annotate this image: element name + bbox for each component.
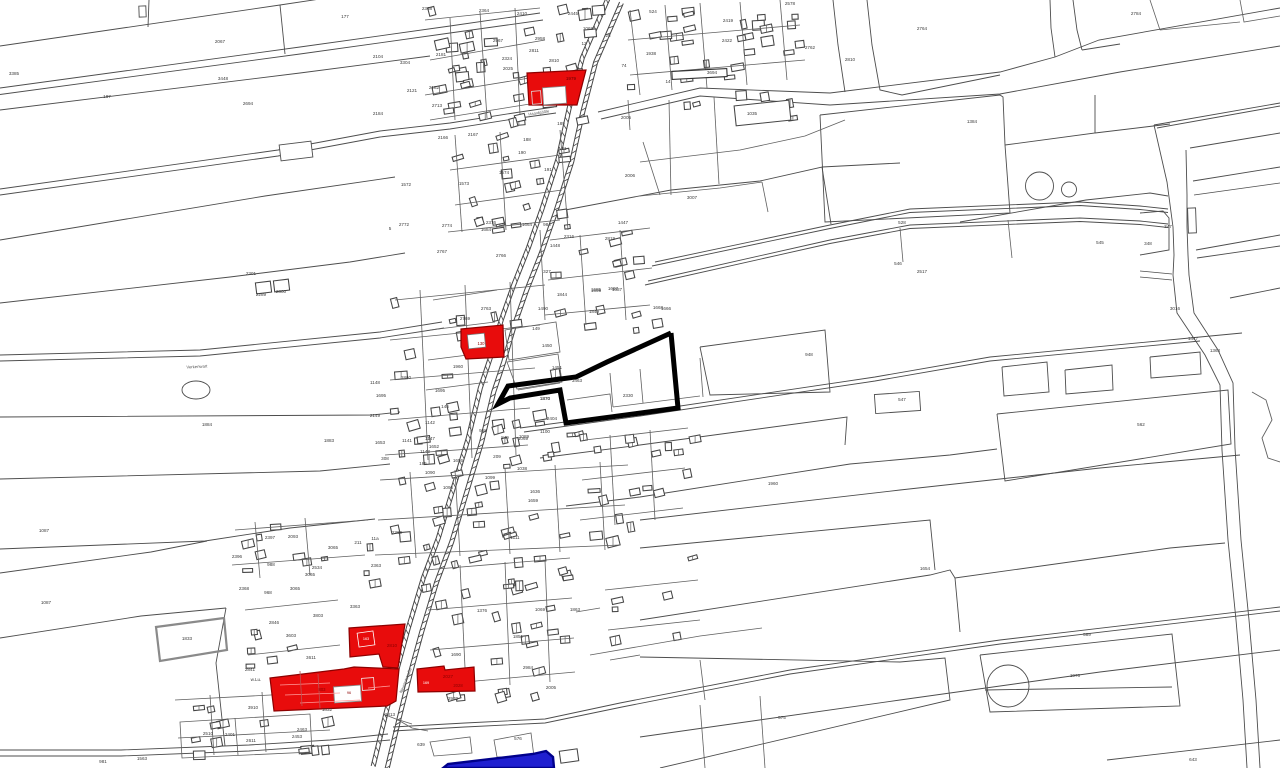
svg-text:2984: 2984 — [523, 665, 534, 670]
svg-text:2769: 2769 — [460, 316, 471, 321]
svg-text:2810: 2810 — [549, 58, 560, 63]
svg-text:3007: 3007 — [687, 195, 698, 200]
svg-text:74: 74 — [621, 63, 627, 68]
svg-text:2376: 2376 — [486, 220, 497, 225]
svg-text:2774: 2774 — [442, 223, 453, 228]
svg-text:1832: 1832 — [322, 707, 333, 712]
svg-text:958: 958 — [479, 428, 487, 433]
svg-text:187: 187 — [103, 94, 111, 99]
svg-text:2810: 2810 — [845, 57, 856, 62]
svg-text:2182: 2182 — [429, 85, 440, 90]
svg-text:149: 149 — [532, 326, 540, 331]
svg-text:2578: 2578 — [785, 1, 796, 6]
svg-text:3363: 3363 — [350, 604, 361, 609]
svg-text:2005: 2005 — [621, 115, 632, 120]
svg-text:327: 327 — [543, 269, 551, 274]
svg-text:1863: 1863 — [570, 607, 581, 612]
svg-text:2369: 2369 — [392, 530, 403, 535]
svg-text:1143: 1143 — [420, 449, 430, 454]
svg-text:1884: 1884 — [202, 422, 213, 427]
svg-text:2784: 2784 — [1131, 11, 1142, 16]
svg-text:1099: 1099 — [485, 475, 496, 480]
svg-text:169: 169 — [423, 681, 429, 685]
svg-text:2767: 2767 — [437, 249, 448, 254]
svg-text:1141: 1141 — [402, 438, 412, 443]
svg-text:1684: 1684 — [481, 227, 492, 232]
svg-text:1572: 1572 — [401, 182, 412, 187]
svg-text:1111: 1111 — [510, 535, 520, 540]
svg-text:1100: 1100 — [540, 429, 550, 434]
svg-text:308: 308 — [381, 456, 389, 461]
svg-text:2028: 2028 — [453, 683, 463, 688]
svg-text:1653: 1653 — [375, 440, 386, 445]
svg-text:2453: 2453 — [292, 734, 303, 739]
svg-text:1563: 1563 — [137, 756, 148, 761]
svg-text:2967: 2967 — [493, 38, 504, 43]
svg-text:3910: 3910 — [248, 705, 259, 710]
svg-text:2841: 2841 — [245, 667, 256, 672]
svg-text:803: 803 — [319, 687, 327, 692]
svg-text:528: 528 — [898, 220, 906, 225]
svg-text:2006: 2006 — [625, 173, 636, 178]
svg-text:1090: 1090 — [425, 470, 436, 475]
svg-text:2419: 2419 — [723, 18, 734, 23]
svg-text:2301: 2301 — [246, 271, 257, 276]
svg-text:1038: 1038 — [517, 466, 528, 471]
svg-text:1860: 1860 — [401, 375, 412, 380]
svg-text:576: 576 — [514, 736, 522, 741]
svg-text:968: 968 — [264, 590, 272, 595]
svg-text:191: 191 — [544, 167, 552, 172]
svg-text:w.Lu.: w.Lu. — [251, 677, 262, 682]
svg-text:981: 981 — [99, 759, 107, 764]
svg-text:2694: 2694 — [243, 101, 254, 106]
svg-text:1844: 1844 — [557, 292, 568, 297]
svg-text:190: 190 — [518, 150, 526, 155]
svg-text:3065: 3065 — [305, 572, 316, 577]
svg-text:1376: 1376 — [477, 608, 488, 613]
svg-text:1849: 1849 — [589, 309, 600, 314]
svg-text:347: 347 — [1164, 224, 1172, 229]
svg-text:2762: 2762 — [805, 45, 816, 50]
svg-text:2970: 2970 — [448, 696, 459, 701]
svg-text:3803: 3803 — [313, 613, 324, 618]
svg-text:1142: 1142 — [425, 420, 435, 425]
svg-text:209: 209 — [493, 454, 501, 459]
svg-text:2401: 2401 — [225, 732, 236, 737]
svg-text:546: 546 — [894, 261, 902, 266]
svg-text:2093: 2093 — [288, 534, 299, 539]
svg-text:1035: 1035 — [747, 111, 758, 116]
svg-text:1883: 1883 — [324, 438, 335, 443]
svg-text:2404: 2404 — [547, 416, 558, 421]
svg-text:1148: 1148 — [370, 380, 380, 385]
svg-text:1147: 1147 — [425, 436, 435, 441]
svg-text:1851: 1851 — [513, 634, 524, 639]
svg-text:2810: 2810 — [387, 643, 398, 648]
svg-text:3304: 3304 — [400, 60, 411, 65]
svg-text:3694: 3694 — [707, 70, 718, 75]
svg-text:2763: 2763 — [481, 306, 492, 311]
svg-text:96: 96 — [347, 691, 351, 695]
svg-text:2166: 2166 — [438, 135, 449, 140]
svg-text:562: 562 — [1137, 422, 1145, 427]
svg-text:1695: 1695 — [435, 388, 446, 393]
svg-text:2958: 2958 — [535, 36, 546, 41]
svg-text:2368: 2368 — [422, 6, 433, 11]
svg-text:3065: 3065 — [290, 586, 301, 591]
svg-text:2510: 2510 — [203, 731, 214, 736]
svg-text:2445: 2445 — [568, 11, 579, 16]
svg-text:575: 575 — [778, 715, 786, 720]
svg-text:1364: 1364 — [1210, 348, 1221, 353]
svg-text:1068: 1068 — [583, 26, 594, 31]
svg-text:2819: 2819 — [605, 236, 616, 241]
svg-text:2104: 2104 — [373, 54, 384, 59]
svg-text:2300: 2300 — [276, 289, 287, 294]
svg-text:211: 211 — [354, 540, 362, 545]
svg-text:1573: 1573 — [459, 181, 470, 186]
svg-text:3016: 3016 — [1170, 306, 1181, 311]
svg-text:25: 25 — [605, 33, 611, 38]
svg-text:545: 545 — [1096, 240, 1104, 245]
svg-text:146: 146 — [441, 404, 449, 409]
svg-text:2517: 2517 — [917, 269, 928, 274]
svg-text:1659: 1659 — [528, 498, 539, 503]
svg-text:2813: 2813 — [385, 712, 396, 717]
svg-text:1451: 1451 — [552, 365, 563, 370]
svg-text:1096: 1096 — [443, 485, 454, 490]
svg-text:1656: 1656 — [453, 458, 464, 463]
svg-text:130: 130 — [478, 341, 486, 346]
svg-text:1087: 1087 — [39, 528, 50, 533]
svg-text:2363: 2363 — [371, 563, 382, 568]
svg-text:2025: 2025 — [503, 66, 514, 71]
svg-text:643: 643 — [1189, 757, 1197, 762]
svg-text:3463: 3463 — [572, 378, 583, 383]
svg-text:2410: 2410 — [517, 11, 528, 16]
svg-text:2397: 2397 — [265, 535, 276, 540]
svg-text:2396: 2396 — [232, 554, 243, 559]
svg-text:31: 31 — [561, 146, 567, 151]
svg-text:948: 948 — [805, 352, 813, 357]
svg-text:589: 589 — [1083, 632, 1091, 637]
svg-text:1574: 1574 — [499, 170, 510, 175]
svg-text:2713: 2713 — [432, 103, 443, 108]
svg-text:2422: 2422 — [722, 38, 733, 43]
svg-text:348: 348 — [1144, 241, 1152, 246]
svg-text:984: 984 — [543, 222, 551, 227]
svg-text:1695: 1695 — [591, 288, 602, 293]
svg-text:1069: 1069 — [518, 436, 529, 441]
svg-text:12: 12 — [581, 41, 587, 46]
svg-text:2324: 2324 — [502, 56, 513, 61]
svg-text:1450: 1450 — [542, 343, 553, 348]
svg-text:2846: 2846 — [269, 620, 280, 625]
svg-text:1938: 1938 — [646, 51, 657, 56]
svg-text:2811: 2811 — [529, 48, 539, 53]
svg-text:1447: 1447 — [618, 220, 629, 225]
svg-text:1636: 1636 — [530, 489, 541, 494]
svg-text:2611: 2611 — [246, 738, 256, 743]
svg-text:1490: 1490 — [538, 306, 549, 311]
svg-text:2766: 2766 — [496, 253, 507, 258]
svg-text:1690: 1690 — [451, 652, 462, 657]
svg-text:2368: 2368 — [239, 586, 250, 591]
svg-text:2364: 2364 — [479, 8, 490, 13]
svg-text:1697: 1697 — [608, 286, 619, 291]
svg-text:639: 639 — [417, 742, 425, 747]
svg-text:1370: 1370 — [540, 396, 551, 401]
svg-text:2289: 2289 — [256, 292, 267, 297]
svg-text:2772: 2772 — [399, 222, 410, 227]
svg-text:1384: 1384 — [967, 119, 978, 124]
svg-text:2463: 2463 — [297, 727, 308, 732]
svg-text:3448: 3448 — [218, 76, 229, 81]
svg-text:849: 849 — [501, 435, 509, 440]
svg-text:1960: 1960 — [768, 481, 779, 486]
svg-text:2534: 2534 — [312, 565, 323, 570]
svg-text:1654: 1654 — [920, 566, 931, 571]
svg-text:988: 988 — [267, 562, 275, 567]
svg-text:2181: 2181 — [436, 52, 447, 57]
svg-text:1448: 1448 — [550, 243, 561, 248]
svg-text:3611: 3611 — [306, 655, 316, 660]
svg-text:2149: 2149 — [370, 413, 381, 418]
svg-text:177: 177 — [341, 14, 349, 19]
svg-text:1069: 1069 — [535, 607, 546, 612]
svg-text:2005: 2005 — [546, 685, 557, 690]
svg-text:1652: 1652 — [429, 444, 440, 449]
svg-text:5: 5 — [389, 226, 392, 231]
svg-text:547: 547 — [898, 397, 906, 402]
svg-text:1666: 1666 — [661, 306, 672, 311]
svg-text:185: 185 — [419, 461, 427, 466]
svg-text:2121: 2121 — [407, 88, 418, 93]
svg-text:3603: 3603 — [286, 633, 297, 638]
svg-text:3385: 3385 — [9, 71, 20, 76]
svg-text:14: 14 — [665, 79, 671, 84]
svg-text:1695: 1695 — [376, 393, 387, 398]
svg-text:1447: 1447 — [1188, 336, 1199, 341]
svg-text:2067: 2067 — [215, 39, 226, 44]
svg-text:1664: 1664 — [522, 222, 533, 227]
svg-text:1960: 1960 — [453, 364, 464, 369]
svg-text:2316: 2316 — [564, 234, 575, 239]
svg-text:188: 188 — [523, 137, 531, 142]
svg-text:189: 189 — [557, 121, 565, 126]
svg-text:163: 163 — [363, 637, 369, 641]
svg-text:1979: 1979 — [566, 76, 577, 81]
svg-text:11a: 11a — [371, 536, 379, 541]
svg-text:2184: 2184 — [373, 111, 384, 116]
svg-text:3065: 3065 — [328, 545, 339, 550]
svg-text:2167: 2167 — [468, 132, 479, 137]
svg-text:1087: 1087 — [41, 600, 52, 605]
svg-text:524: 524 — [649, 9, 657, 14]
svg-text:2027: 2027 — [443, 674, 454, 679]
svg-text:2764: 2764 — [917, 26, 928, 31]
svg-text:1076: 1076 — [1070, 673, 1081, 678]
svg-text:2330: 2330 — [623, 393, 634, 398]
svg-text:1833: 1833 — [182, 636, 193, 641]
